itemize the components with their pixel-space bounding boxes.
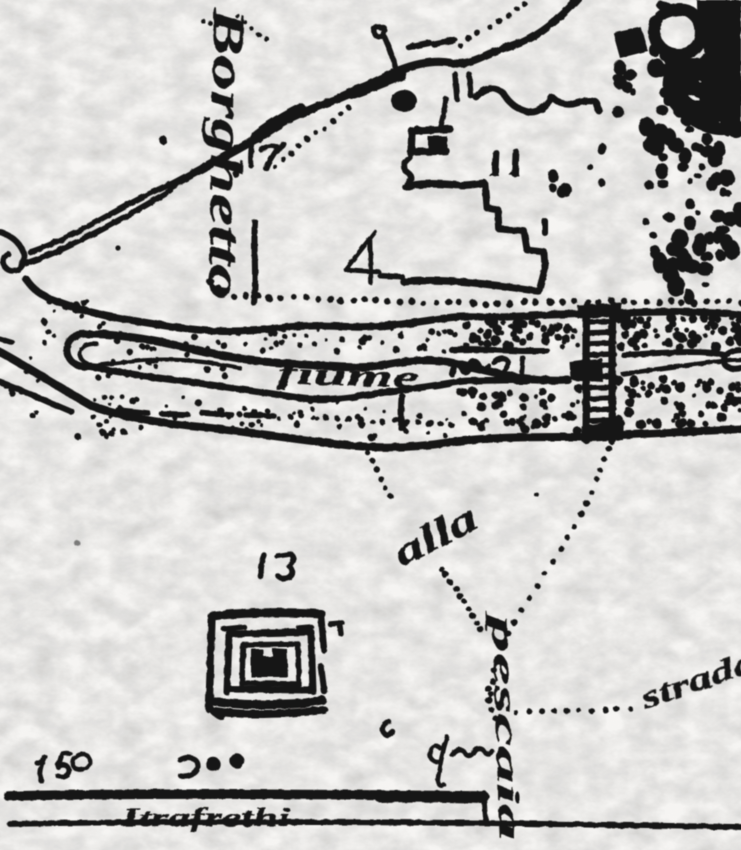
svg-text:Borghetto: Borghetto <box>199 6 254 300</box>
svg-text:fiume: fiume <box>277 355 421 395</box>
svg-text:Itrafrethi: Itrafrethi <box>120 803 291 832</box>
